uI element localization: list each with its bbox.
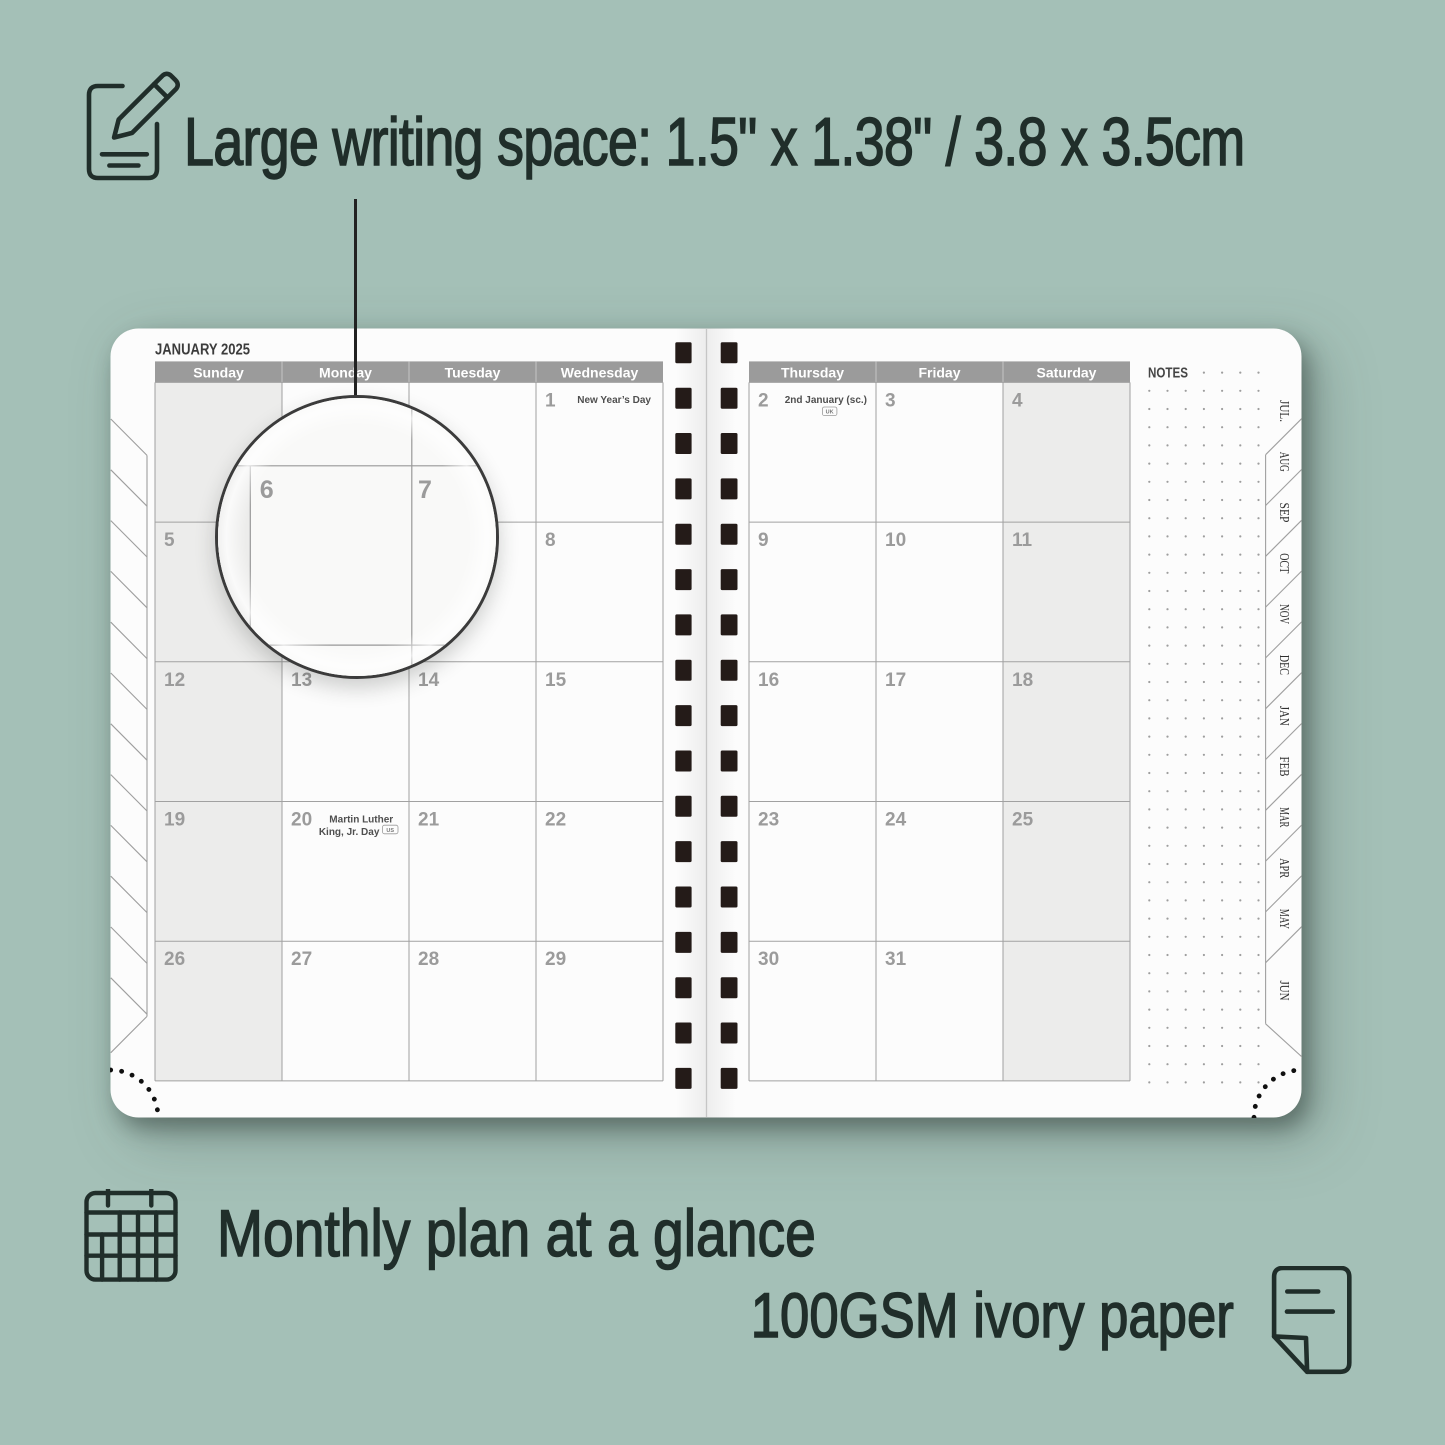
svg-text:2nd January (sc.): 2nd January (sc.) (785, 395, 867, 406)
svg-text:17: 17 (885, 670, 906, 691)
svg-text:Saturday: Saturday (1037, 364, 1097, 380)
svg-text:UK: UK (826, 410, 834, 416)
svg-text:Tuesday: Tuesday (445, 364, 501, 380)
svg-text:8: 8 (545, 530, 556, 551)
svg-text:New Year’s Day: New Year’s Day (577, 395, 651, 406)
svg-text:Wednesday: Wednesday (561, 364, 639, 380)
svg-text:29: 29 (545, 949, 566, 970)
svg-text:JANUARY 2025: JANUARY 2025 (155, 342, 250, 359)
svg-text:Sunday: Sunday (193, 364, 244, 380)
svg-text:27: 27 (291, 949, 312, 970)
svg-text:20: 20 (291, 810, 312, 831)
svg-text:28: 28 (418, 949, 439, 970)
svg-text:OCT: OCT (1277, 553, 1292, 574)
svg-text:26: 26 (164, 949, 185, 970)
svg-text:Martin Luther: Martin Luther (329, 815, 393, 826)
svg-text:11: 11 (1012, 530, 1033, 551)
svg-text:APR: APR (1277, 858, 1292, 878)
svg-text:24: 24 (885, 810, 907, 831)
svg-text:King, Jr. Day: King, Jr. Day (319, 827, 380, 838)
svg-text:MAY: MAY (1277, 909, 1292, 929)
svg-text:16: 16 (758, 670, 779, 691)
svg-text:5: 5 (164, 530, 175, 551)
svg-text:13: 13 (291, 670, 312, 691)
svg-text:1: 1 (545, 390, 556, 411)
svg-text:DEC: DEC (1277, 655, 1292, 675)
svg-text:3: 3 (885, 390, 896, 411)
svg-text:15: 15 (545, 670, 567, 691)
svg-text:JUL.: JUL. (1277, 400, 1292, 422)
svg-text:19: 19 (164, 810, 185, 831)
svg-text:Monday: Monday (319, 364, 372, 380)
svg-text:25: 25 (1012, 810, 1034, 831)
svg-text:FEB: FEB (1277, 757, 1292, 777)
svg-text:12: 12 (164, 670, 185, 691)
svg-text:Thursday: Thursday (781, 364, 844, 380)
svg-text:JUN: JUN (1277, 981, 1292, 1001)
svg-text:23: 23 (758, 810, 779, 831)
svg-text:31: 31 (885, 949, 907, 970)
svg-text:US: US (386, 828, 394, 834)
svg-text:30: 30 (758, 949, 779, 970)
svg-text:10: 10 (885, 530, 906, 551)
svg-text:9: 9 (758, 530, 769, 551)
svg-text:21: 21 (418, 810, 440, 831)
svg-text:NOTES: NOTES (1148, 364, 1188, 381)
svg-text:NOV: NOV (1277, 604, 1292, 624)
svg-text:22: 22 (545, 810, 566, 831)
svg-text:2: 2 (758, 390, 769, 411)
svg-text:7: 7 (418, 476, 432, 504)
svg-text:18: 18 (1012, 670, 1033, 691)
svg-text:SEP: SEP (1277, 503, 1292, 523)
svg-text:6: 6 (260, 476, 274, 504)
svg-text:JAN: JAN (1277, 706, 1292, 726)
svg-text:4: 4 (1012, 390, 1023, 411)
svg-text:14: 14 (418, 670, 440, 691)
svg-text:MAR: MAR (1277, 807, 1292, 827)
svg-text:Friday: Friday (918, 364, 960, 380)
svg-text:AUG: AUG (1277, 452, 1292, 472)
